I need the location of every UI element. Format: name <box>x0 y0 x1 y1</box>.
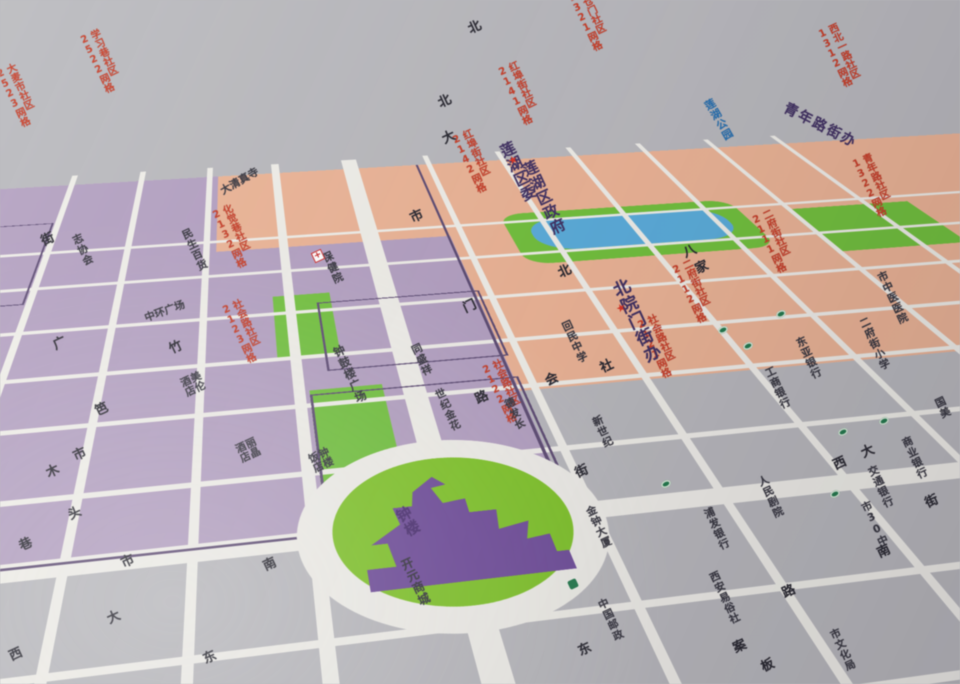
street-name-char: 木 <box>44 463 62 481</box>
street-name-char: 路 <box>780 583 798 601</box>
street-name-char: 竹 <box>167 339 185 357</box>
poi-label: 开元商城 <box>398 556 431 608</box>
post-office-icon <box>567 578 579 590</box>
street-name-char: 北 <box>436 93 454 111</box>
poi-label: 市中医医院 <box>875 270 909 327</box>
poi-label: 国美 <box>932 395 952 421</box>
bank-icon <box>717 325 729 336</box>
government-label: 青年路街办 <box>781 101 859 150</box>
poi-label: 工商银行 <box>762 365 791 411</box>
street-name-char: 南 <box>261 556 279 574</box>
street-name-char: 路 <box>473 389 491 407</box>
community-grid-label: 2111网格二府街社区 <box>749 209 795 276</box>
street-name-char: 市 <box>71 446 89 464</box>
bank-icon <box>775 309 787 320</box>
street-name-char: 街 <box>923 493 941 511</box>
street-name-char: 笆 <box>93 401 111 419</box>
community-grid-label: 1322网格青年路社区 <box>849 153 895 220</box>
bank-icon <box>878 416 890 427</box>
poi-label: 民生百货 <box>179 227 208 273</box>
poi-label: 同盛祥 <box>409 342 434 378</box>
community-grid-label: 2123网格社会路社区 <box>219 299 265 366</box>
poi-label: 大清真寺 <box>219 167 261 198</box>
poi-label: 金钟大厦 <box>583 504 612 550</box>
map-photo: 2522网格学习巷社区2523网格大麦市社区2132网格化觉巷社区2123网格社… <box>0 0 960 684</box>
poi-label: 酒店丽晶 <box>233 436 262 464</box>
poi-label: 钟鼓楼广场 <box>331 343 368 405</box>
street-name-char: 东 <box>201 649 219 667</box>
street-name-char: 西 <box>7 646 25 664</box>
street-name-char: 街 <box>39 231 57 249</box>
poi-label: 东亚银行 <box>793 335 822 381</box>
community-grid-label: 1321网格西仓门社区 <box>565 0 611 53</box>
street-name-char: 广 <box>51 335 69 353</box>
poi-label: 人民剧院 <box>755 474 784 520</box>
street-name-char: 巷 <box>17 536 35 554</box>
street-name-char: 门 <box>461 298 479 316</box>
poi-label: 浦发银行 <box>701 506 730 552</box>
poi-label: 饭店钟楼 <box>306 446 335 474</box>
street-name-char: 板 <box>759 657 777 675</box>
bell-tower-label: 钟楼 <box>392 504 422 540</box>
street-name-char: 八 <box>681 243 699 261</box>
street-name-char: 北 <box>466 19 484 37</box>
poi-label: 志协会 <box>70 232 95 268</box>
street-name-char: 东 <box>576 641 594 659</box>
street-name-char: 市 <box>408 208 426 226</box>
poi-label: 世纪金花 <box>432 387 461 433</box>
bank-icon <box>742 341 754 352</box>
poi-label: 市文化局 <box>827 627 856 673</box>
street-name-char: 案 <box>731 638 749 656</box>
bank-icon <box>837 427 849 438</box>
bank-icon <box>829 489 841 500</box>
community-grid-label: 2523网格大麦市社区 <box>0 63 39 130</box>
poi-label: 回民中学 <box>559 319 588 365</box>
poi-label: 商业银行 <box>899 435 928 481</box>
street-name-char: 大 <box>105 609 123 627</box>
poi-label: 中国邮政 <box>595 597 624 643</box>
poi-label: 二府街小学 <box>857 316 891 373</box>
community-grid-label: 2132网格化觉巷社区 <box>209 204 255 271</box>
poi-label: 酒店美伦 <box>178 370 207 398</box>
street-name-char: 街 <box>573 463 591 481</box>
bank-icon <box>660 479 672 490</box>
street-name-char: 会 <box>543 371 561 389</box>
community-grid-label: 2522网格学习巷社区 <box>77 29 123 96</box>
community-grid-label: 1312网格西北一路社区 <box>815 23 861 90</box>
poi-label: 新世纪 <box>590 414 615 450</box>
community-grid-label: 2141网格红埠街社区 <box>495 61 541 128</box>
label-layer: 2522网格学习巷社区2523网格大麦市社区2132网格化觉巷社区2123网格社… <box>0 0 960 684</box>
street-name-char: 北 <box>556 263 574 281</box>
street-name-char: 头 <box>66 505 84 523</box>
street-name-char: 大 <box>859 443 877 461</box>
park-label: 莲湖公园 <box>702 97 735 142</box>
street-name-char: 西 <box>831 455 849 473</box>
poi-label: 西安易俗社 <box>707 570 741 627</box>
street-name-char: 社 <box>598 358 616 376</box>
street-name-char: 市 <box>119 553 137 571</box>
poi-label: 中环广场 <box>143 300 186 325</box>
